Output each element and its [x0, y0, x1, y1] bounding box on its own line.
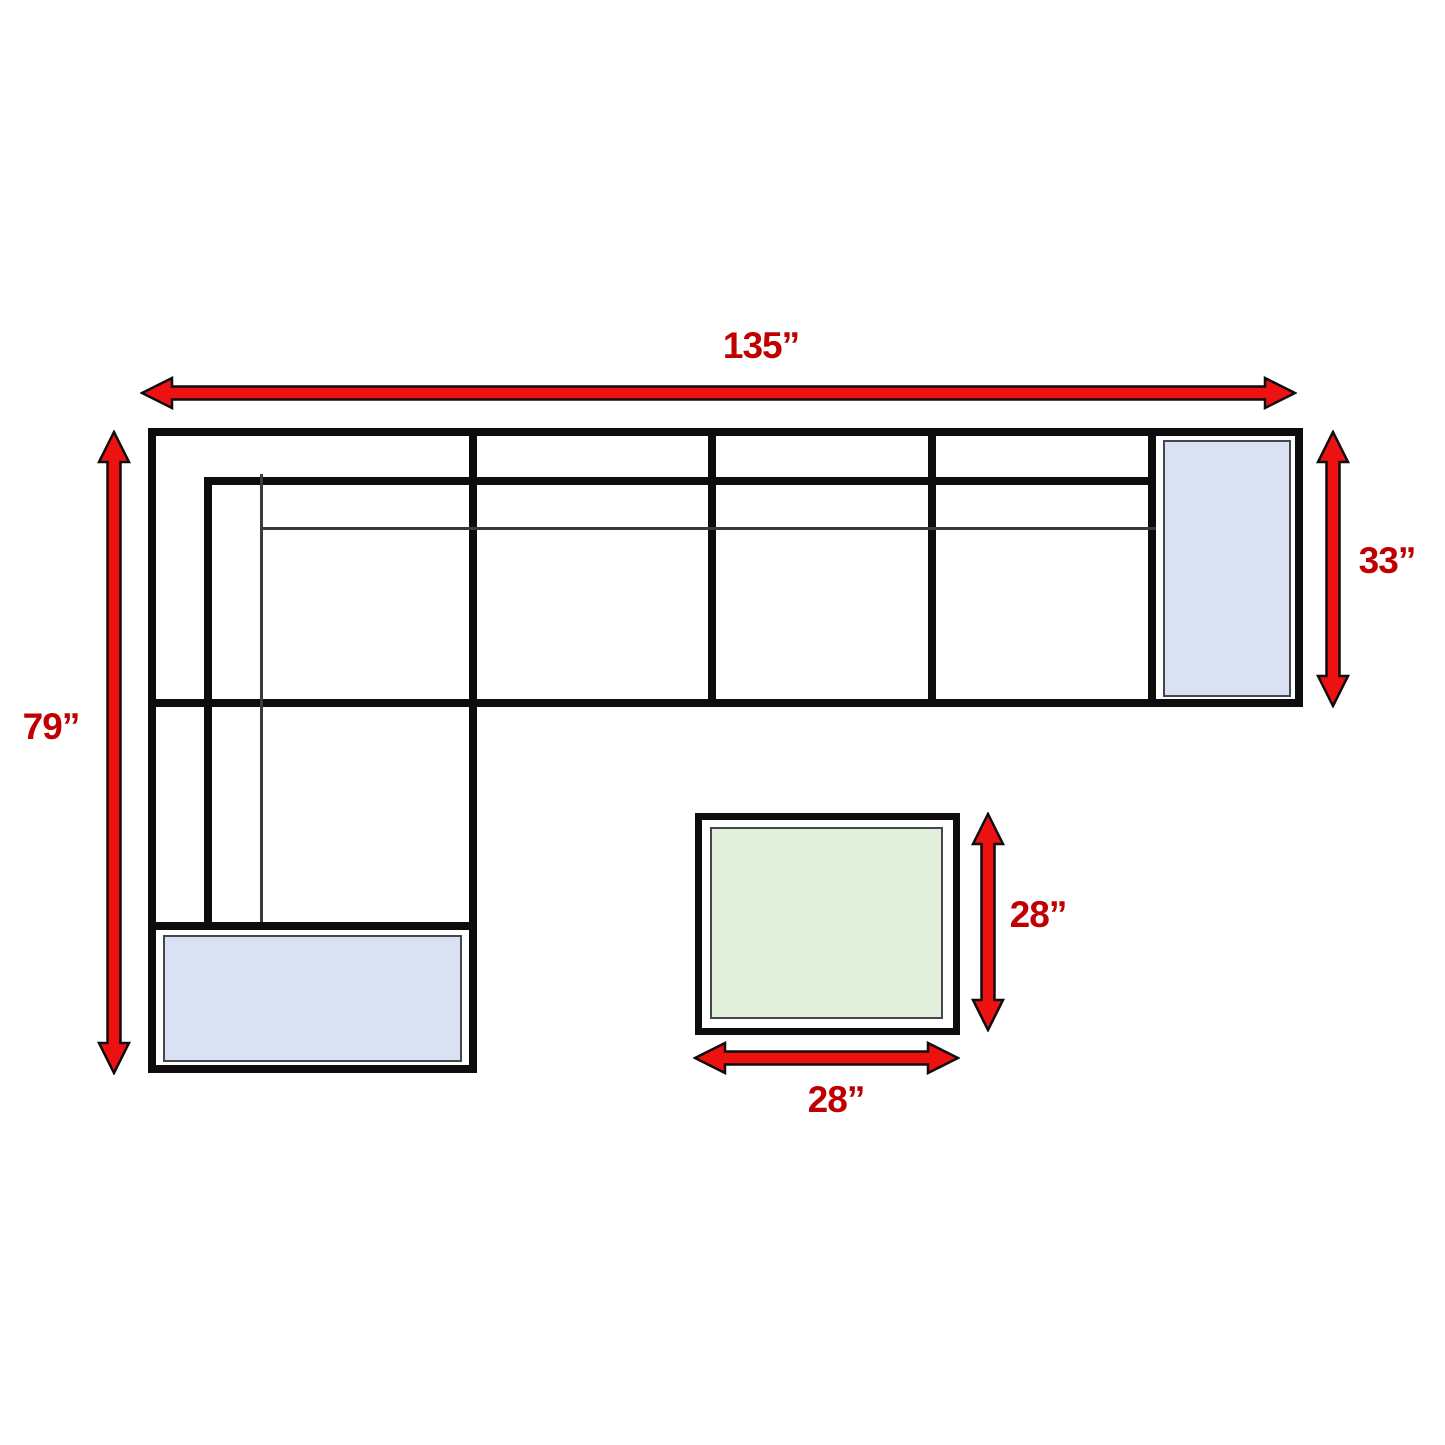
dimension-label-ottoman-depth: 28”	[1010, 894, 1067, 936]
dimension-label-right-section-depth: 33”	[1359, 540, 1416, 582]
right-armrest-cushion	[1163, 440, 1291, 697]
dimension-arrow-overall-depth	[97, 430, 131, 1075]
seat-seam-horizontal	[260, 527, 1156, 530]
seat-seam-vertical	[260, 474, 263, 930]
dimension-label-ottoman-width: 28”	[808, 1079, 865, 1121]
dimension-label-overall-width: 135”	[723, 325, 799, 367]
right-armrest-divider	[1148, 428, 1156, 707]
dimension-label-overall-depth: 79”	[23, 706, 80, 748]
dimension-arrow-right-section-depth	[1316, 430, 1350, 708]
dimension-arrow-ottoman-depth	[971, 812, 1005, 1032]
armrest-inner-line-vertical	[204, 477, 212, 930]
ottoman-cushion	[710, 827, 943, 1019]
seat-divider-2	[928, 428, 936, 707]
seat-divider-1	[708, 428, 716, 707]
chaise-foot-cushion	[163, 935, 462, 1062]
backrest-inner-line-horizontal	[204, 477, 1156, 485]
dimension-arrow-overall-width	[140, 376, 1297, 410]
sofa-dimension-diagram: 135” 79” 33” 28” 28”	[0, 0, 1445, 1445]
chaise-foot-divider	[148, 922, 477, 930]
dimension-arrow-ottoman-width	[693, 1041, 960, 1075]
sofa-body-outline	[148, 428, 1303, 707]
